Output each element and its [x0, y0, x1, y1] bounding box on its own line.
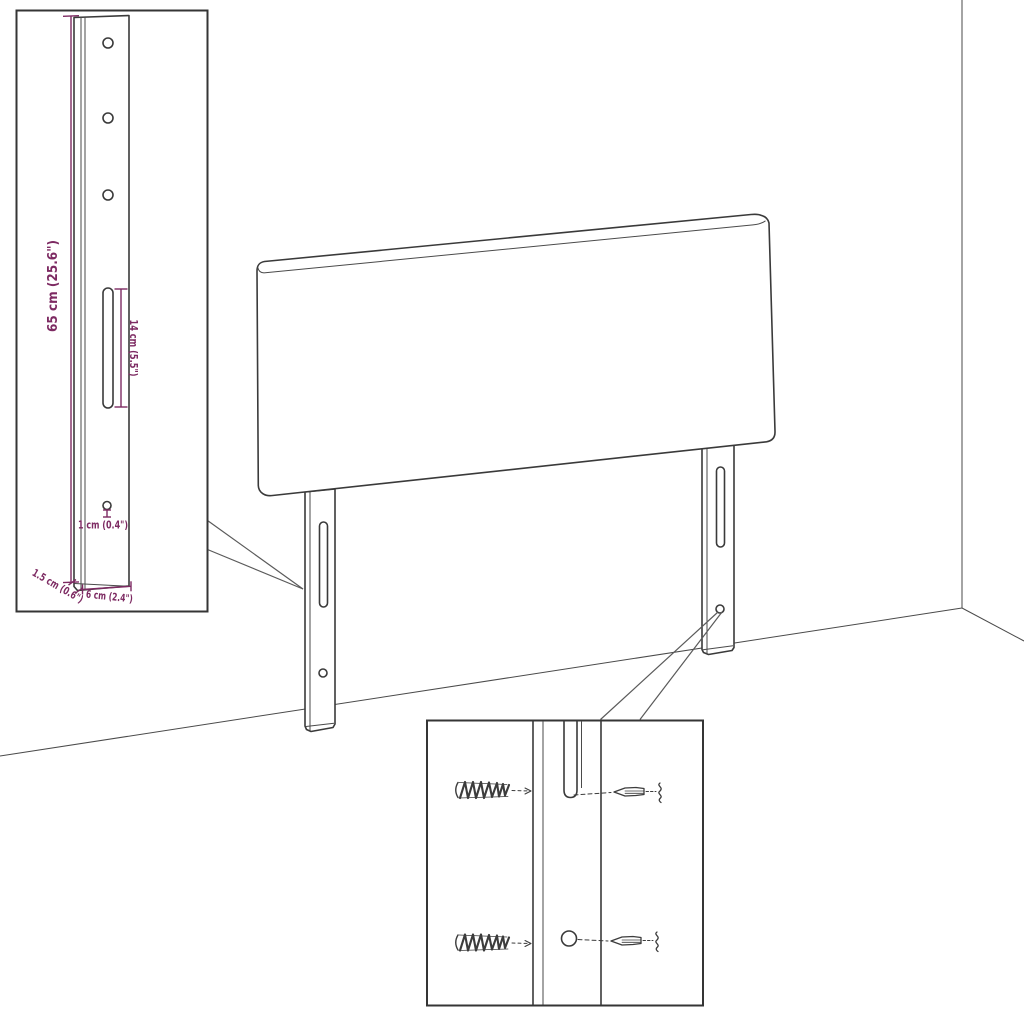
detail-inset: 65 cm (25.6") 14 cm (5.5") 1 cm (0.4") 1… [17, 11, 208, 612]
mounting-callout-line-left [601, 612, 719, 720]
callout-lines [208, 521, 723, 720]
inset-leg-slot [103, 288, 113, 408]
inset-leg-hole-top [103, 38, 113, 48]
mounting-inset-box [427, 721, 703, 1006]
dim-slot-label: 14 cm (5.5") [127, 320, 139, 377]
product-diagram: 65 cm (25.6") 14 cm (5.5") 1 cm (0.4") 1… [0, 0, 1024, 1024]
diagram-svg: 65 cm (25.6") 14 cm (5.5") 1 cm (0.4") 1… [0, 0, 1024, 1024]
inset-leg-small-hole [103, 502, 111, 510]
detail-callout-line-upper [208, 521, 304, 590]
strip-hole [562, 931, 577, 946]
dim-hole-label: 1 cm (0.4") [78, 520, 128, 532]
dim-height-label: 65 cm (25.6") [45, 240, 61, 332]
mounting-inset [427, 721, 703, 1006]
inset-leg-hole-bottom [103, 190, 113, 200]
mounting-callout-line-right [640, 612, 722, 720]
right-leg-hole [716, 605, 724, 613]
screw-leader-dashed [512, 943, 530, 944]
right-leg-slot [717, 467, 725, 547]
inset-leg-hole-middle [103, 113, 113, 123]
left-leg-hole [319, 669, 327, 677]
headboard-outline [257, 214, 775, 495]
headboard-panel [257, 214, 775, 495]
screw-leader-dashed [512, 791, 530, 792]
dim-height-tick-top [63, 16, 79, 17]
left-leg-slot [320, 522, 328, 607]
floor-wall-line-right [962, 608, 1024, 641]
left-leg [305, 489, 335, 732]
